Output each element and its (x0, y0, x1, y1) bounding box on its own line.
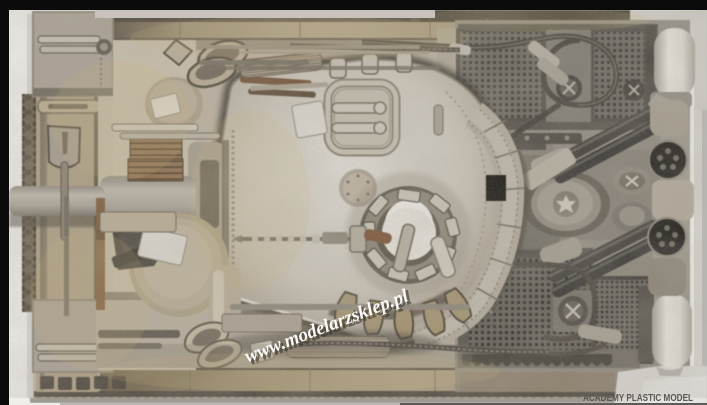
svg-text:ACADEMY PLASTIC MODEL: ACADEMY PLASTIC MODEL (583, 392, 693, 404)
